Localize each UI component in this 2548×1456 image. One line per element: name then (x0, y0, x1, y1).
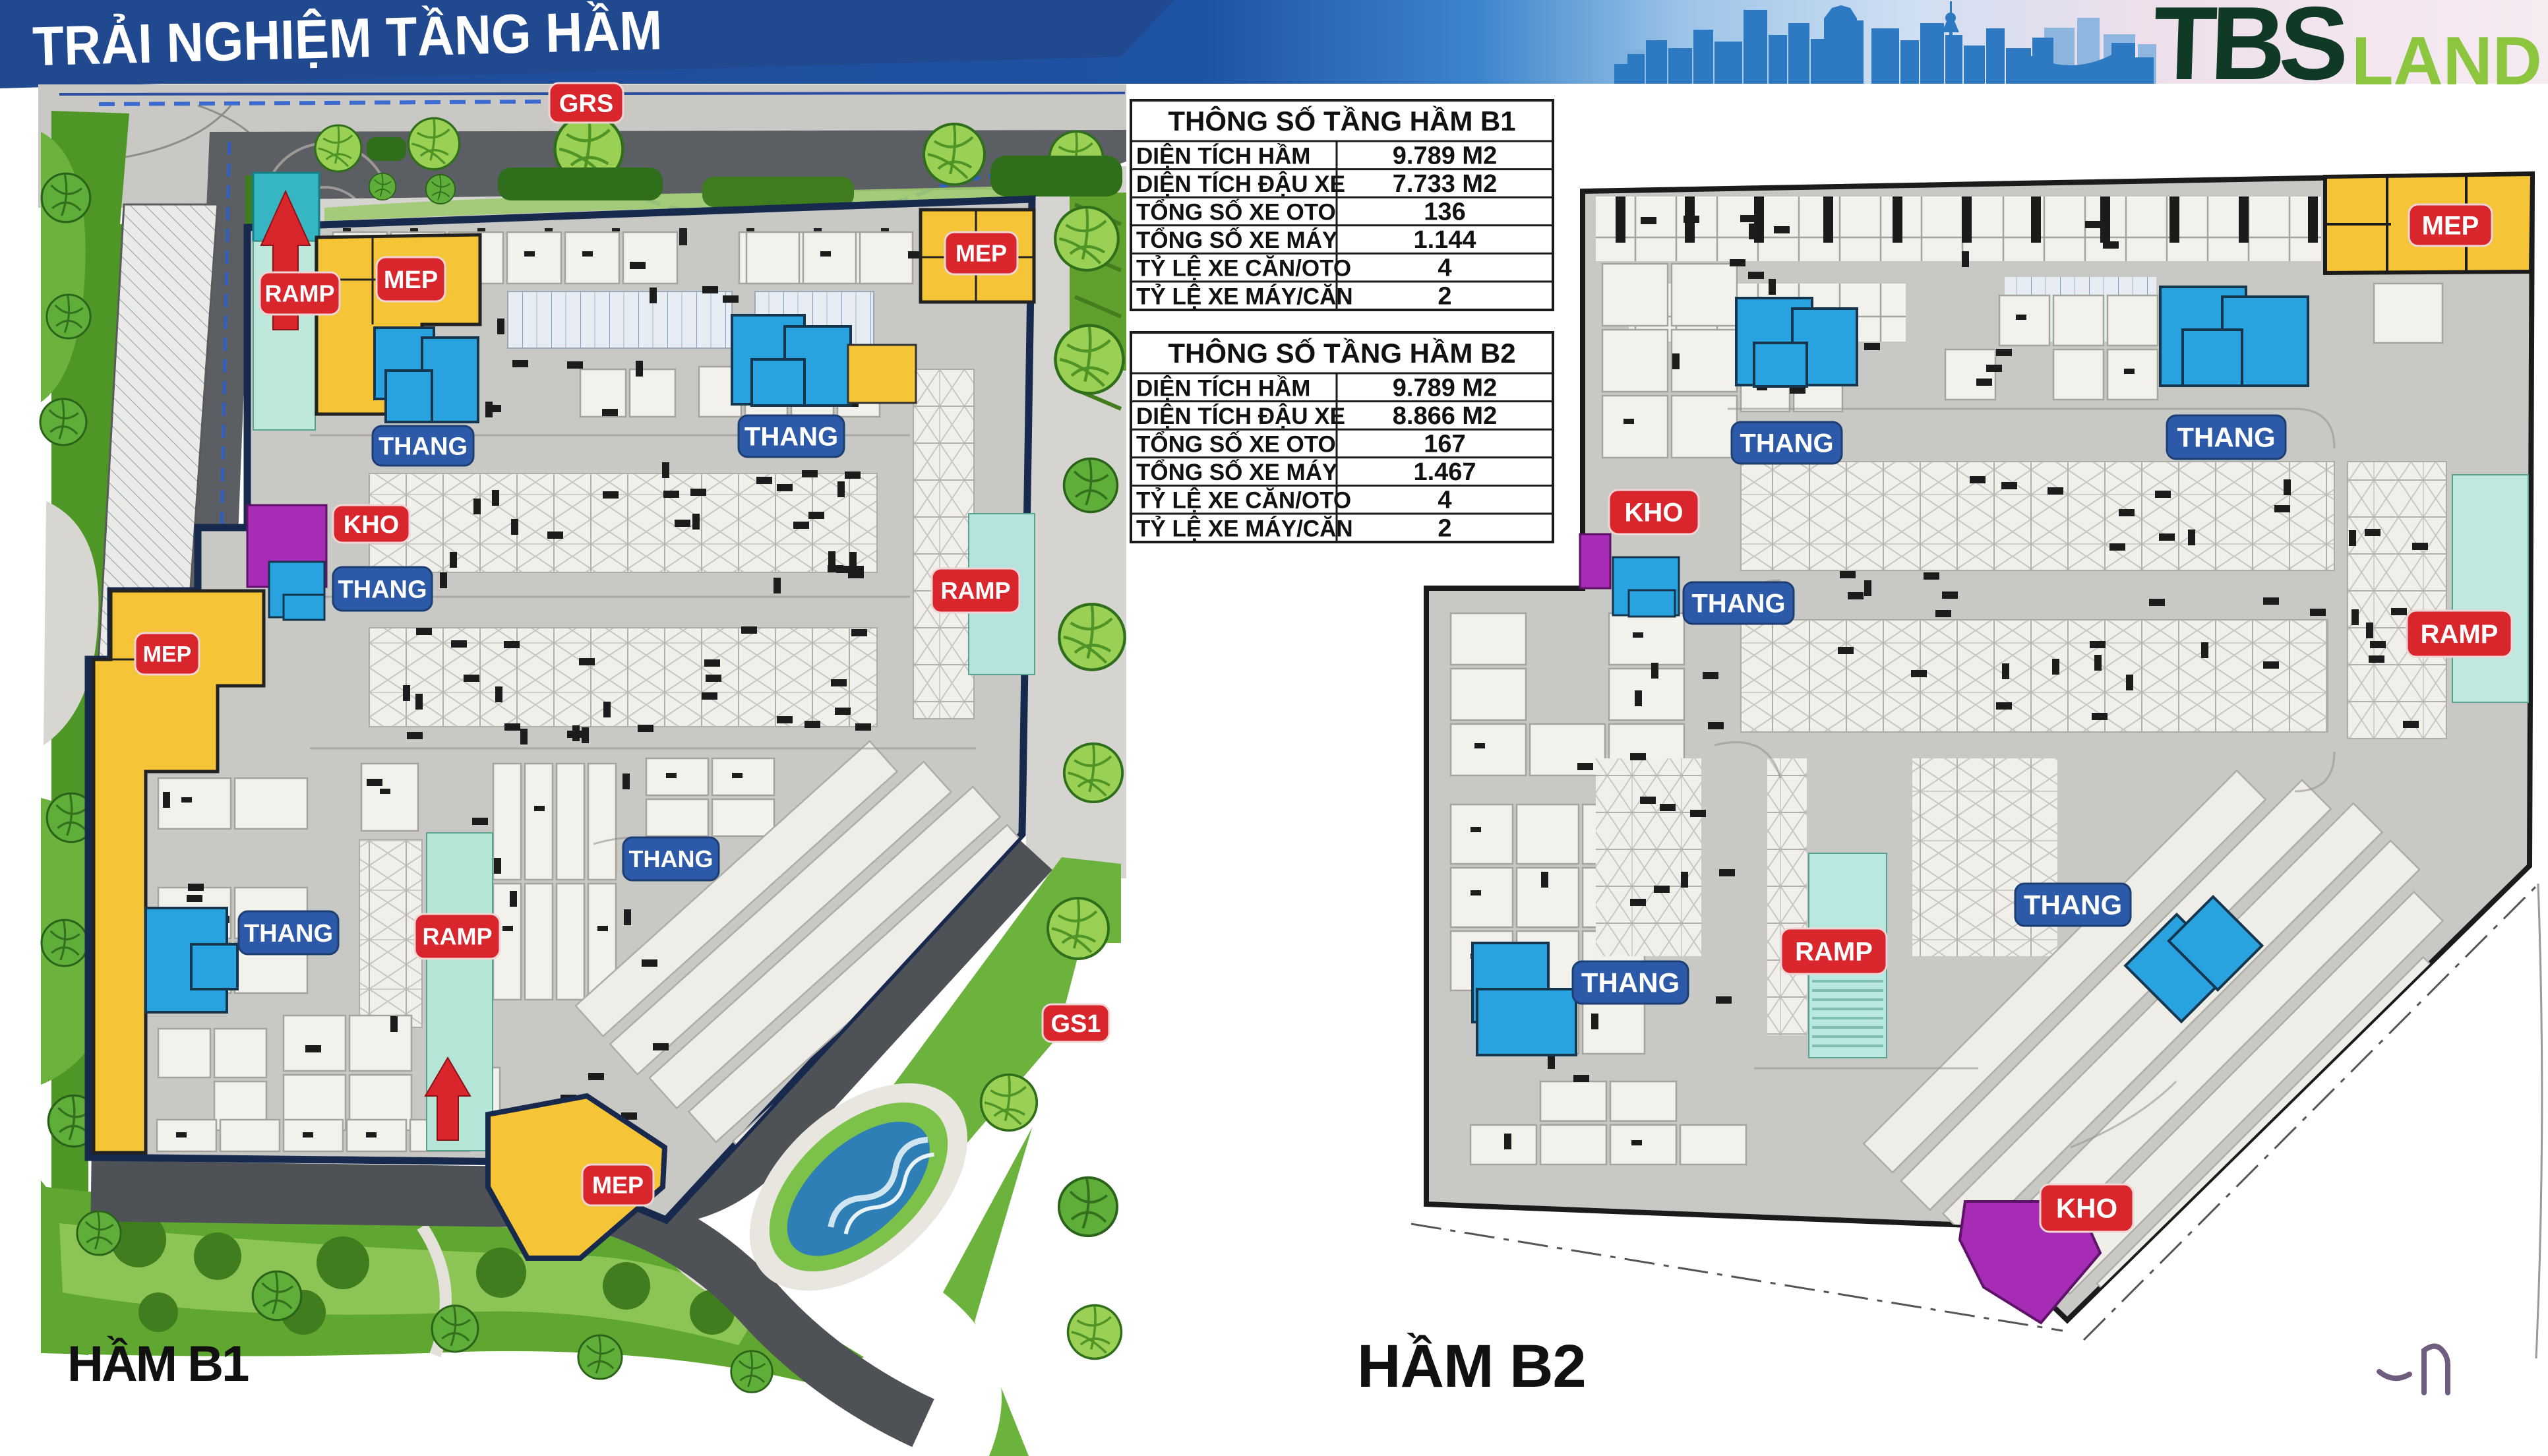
svg-text:TỶ LỆ XE CĂN/OTO: TỶ LỆ XE CĂN/OTO (1136, 487, 1351, 514)
svg-text:9.789 M2: 9.789 M2 (1393, 374, 1497, 402)
svg-text:TỔNG SỐ XE OTO: TỔNG SỐ XE OTO (1136, 199, 1336, 226)
svg-text:RAMP: RAMP (941, 577, 1011, 604)
svg-text:MEP: MEP (956, 240, 1007, 267)
svg-text:HẦM B1: HẦM B1 (67, 1336, 249, 1392)
svg-text:2: 2 (1438, 282, 1451, 310)
svg-text:7.733 M2: 7.733 M2 (1393, 170, 1497, 198)
svg-text:KHO: KHO (344, 511, 399, 539)
svg-text:DIỆN TÍCH ĐẬU XE: DIỆN TÍCH ĐẬU XE (1136, 171, 1345, 197)
svg-text:8.866 M2: 8.866 M2 (1393, 402, 1497, 430)
svg-text:1.467: 1.467 (1413, 458, 1476, 486)
svg-text:4: 4 (1438, 487, 1451, 514)
svg-text:KHO: KHO (1625, 499, 1683, 528)
svg-text:THANG: THANG (1691, 590, 1785, 619)
svg-text:136: 136 (1424, 198, 1465, 226)
svg-text:RAMP: RAMP (265, 280, 335, 307)
svg-text:LAND: LAND (2351, 23, 2542, 100)
svg-text:THANG: THANG (629, 845, 713, 872)
svg-text:TỶ LỆ XE CĂN/OTO: TỶ LỆ XE CĂN/OTO (1136, 255, 1351, 282)
svg-text:RAMP: RAMP (2421, 620, 2499, 649)
svg-text:TỔNG SỐ XE MÁY: TỔNG SỐ XE MÁY (1136, 459, 1337, 485)
svg-text:THANG: THANG (1740, 429, 1833, 458)
svg-text:RAMP: RAMP (423, 923, 493, 950)
svg-text:RAMP: RAMP (1795, 938, 1873, 967)
svg-text:TỔNG SỐ XE MÁY: TỔNG SỐ XE MÁY (1136, 227, 1337, 253)
svg-text:THÔNG SỐ TẦNG HẦM B2: THÔNG SỐ TẦNG HẦM B2 (1168, 337, 1515, 369)
svg-text:GRS: GRS (559, 90, 613, 117)
svg-text:167: 167 (1424, 431, 1465, 458)
svg-text:9.789 M2: 9.789 M2 (1393, 142, 1497, 169)
svg-text:MEP: MEP (2422, 212, 2479, 241)
svg-text:THANG: THANG (1581, 967, 1680, 998)
svg-text:KHO: KHO (2056, 1193, 2117, 1224)
svg-text:TBS: TBS (2152, 0, 2348, 102)
svg-text:1.144: 1.144 (1413, 226, 1476, 254)
svg-text:DIỆN TÍCH HẦM: DIỆN TÍCH HẦM (1136, 142, 1310, 169)
svg-text:4: 4 (1438, 255, 1451, 282)
svg-text:THANG: THANG (2024, 890, 2122, 921)
svg-text:TỔNG SỐ XE OTO: TỔNG SỐ XE OTO (1136, 431, 1336, 458)
svg-text:THANG: THANG (379, 433, 468, 460)
svg-text:TỶ LỆ XE MÁY/CĂN: TỶ LỆ XE MÁY/CĂN (1136, 515, 1353, 541)
svg-text:THANG: THANG (338, 576, 427, 603)
svg-text:THANG: THANG (2177, 422, 2275, 453)
svg-text:DIỆN TÍCH ĐẬU XE: DIỆN TÍCH ĐẬU XE (1136, 403, 1345, 429)
svg-text:DIỆN TÍCH HẦM: DIỆN TÍCH HẦM (1136, 375, 1310, 401)
svg-text:MEP: MEP (143, 642, 192, 667)
svg-text:THANG: THANG (744, 423, 838, 452)
svg-text:THANG: THANG (244, 920, 333, 948)
svg-text:2: 2 (1438, 514, 1451, 542)
svg-text:HẦM B2: HẦM B2 (1357, 1332, 1586, 1400)
svg-text:MEP: MEP (592, 1172, 644, 1199)
svg-text:MEP: MEP (384, 266, 438, 294)
svg-text:THÔNG SỐ TẦNG HẦM B1: THÔNG SỐ TẦNG HẦM B1 (1168, 105, 1515, 136)
svg-text:TỶ LỆ XE MÁY/CĂN: TỶ LỆ XE MÁY/CĂN (1136, 283, 1353, 309)
svg-text:GS1: GS1 (1050, 1010, 1101, 1038)
